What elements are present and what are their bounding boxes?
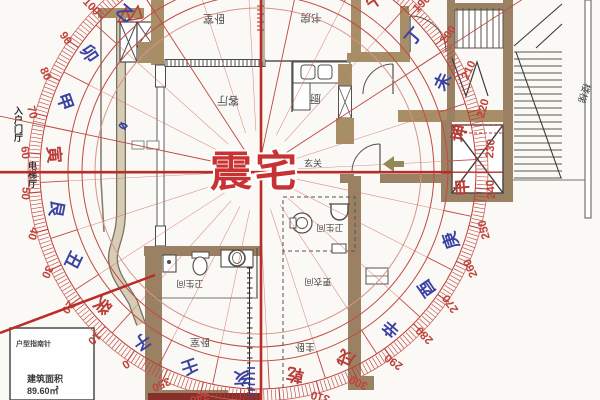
svg-text:户型指南针: 户型指南针 bbox=[16, 339, 51, 348]
svg-text:240: 240 bbox=[485, 179, 498, 199]
svg-text:卫生间: 卫生间 bbox=[176, 279, 203, 290]
svg-text:入户门厅: 入户门厅 bbox=[13, 106, 24, 143]
svg-text:申: 申 bbox=[451, 178, 472, 197]
svg-text:卫生间: 卫生间 bbox=[316, 223, 343, 234]
svg-text:230: 230 bbox=[484, 138, 498, 158]
svg-text:乾: 乾 bbox=[285, 364, 305, 387]
svg-text:书房: 书房 bbox=[300, 11, 322, 24]
svg-text:建筑面积: 建筑面积 bbox=[27, 373, 63, 384]
svg-text:震宅: 震宅 bbox=[210, 148, 300, 195]
svg-text:50: 50 bbox=[18, 186, 31, 200]
svg-text:亥: 亥 bbox=[233, 367, 252, 388]
svg-text:玄关: 玄关 bbox=[304, 157, 322, 168]
svg-text:89.60㎡: 89.60㎡ bbox=[27, 385, 59, 396]
svg-text:60: 60 bbox=[18, 146, 31, 160]
svg-text:客厅: 客厅 bbox=[217, 94, 239, 108]
svg-text:寅: 寅 bbox=[43, 145, 64, 164]
svg-text:坤: 坤 bbox=[448, 123, 471, 143]
